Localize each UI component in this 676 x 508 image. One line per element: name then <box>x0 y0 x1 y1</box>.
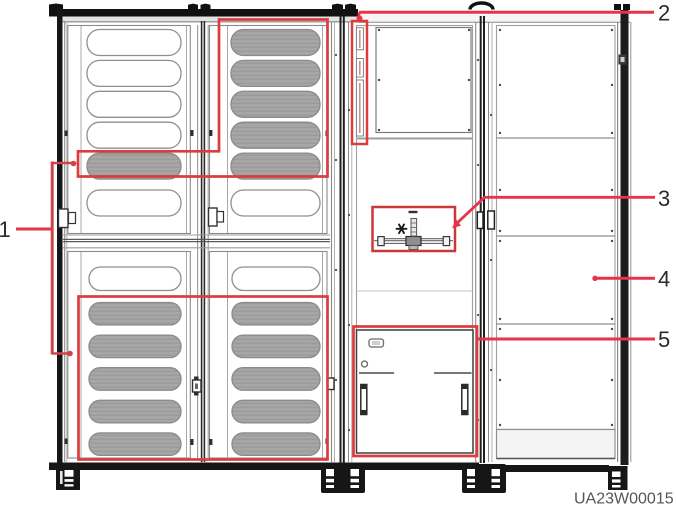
svg-text:5: 5 <box>658 327 670 352</box>
svg-text:2: 2 <box>658 0 670 25</box>
svg-text:4: 4 <box>658 266 670 291</box>
svg-text:3: 3 <box>658 186 670 211</box>
svg-text:1: 1 <box>0 217 11 242</box>
svg-text:UA23W00015: UA23W00015 <box>574 491 674 508</box>
